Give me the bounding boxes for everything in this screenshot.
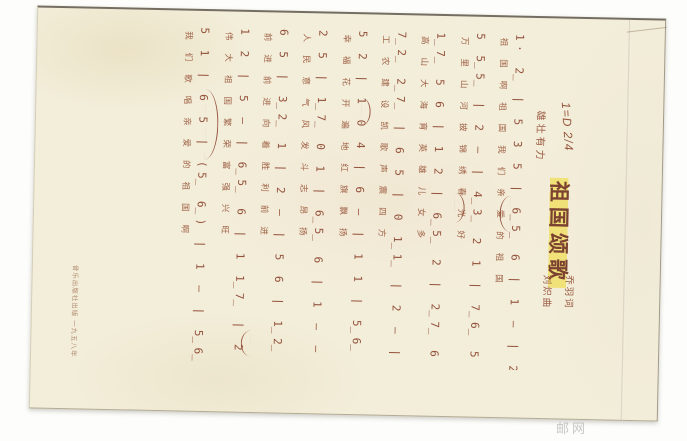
publisher-imprint: 音乐出版社出版 一九五八年 [69,265,81,358]
staff-line-5-notes: 5 2 | 1 0 4 | 6 — | 1 1 | 5̲6̲ 5 3 | 2 —… [349,31,369,367]
song-title: 祖国颂歌 [545,178,570,288]
paper-sheet: 祖国颂歌 1=D 2/4 雄壮有力 乔羽词 刘炽曲 1· 2̲ | 5 3 5 … [29,5,666,421]
title-row: 祖国颂歌 [540,33,578,434]
staff-line-9-notes: 5 1 | 6 5 | (5̲ 6̲) | 1 — | 5̲6̲ 5 | 1 —… [191,27,211,363]
staff-line-3-notes: 1̲7̲ 5 6 | 1 2 | 6̲5̲ 2 | 2̲7̲ 6 — | 5 6… [427,32,447,368]
credit-composer: 刘炽曲 [541,275,556,310]
credit-lyricist: 乔羽词 [563,275,578,310]
tempo-marking: 雄壮有力 [534,110,550,162]
staff-line-6-notes: 2 5 | 1̲7̲ 0 1 | 6̲5̲ 6 | 1 — — | 2 2 | … [309,30,329,366]
scanned-sheet-music-page: 祖国颂歌 1=D 2/4 雄壮有力 乔羽词 刘炽曲 1· 2̲ | 5 3 5 … [0,0,687,441]
staff-line-4-notes: 7̲2̲ 2̲7̲ | 6 5 | 0 1̲1̲ | 2 — | 5̲5̲ 3 … [388,31,408,367]
staff-line-2-notes: 5 5̲5̲ | 2 — | 4̲3̲ 2 1 | 7̲6̲ 5 | 5 6̲7… [467,33,487,369]
music-sheet-content: 祖国颂歌 1=D 2/4 雄壮有力 乔羽词 刘炽曲 1· 2̲ | 5 3 5 … [29,8,664,421]
staff-line-1-notes: 1· 2̲ | 5 3 5 | 6̲5̲ 6 | 1 — | 2̲2̲ 7̲6̲… [506,34,526,370]
staff-line-8-notes: 1 2 | 5 — | 6̲5̲ 6 | 1 1̲7̲ | 2 — | 5 6 … [231,28,251,364]
staff-line-7-notes: 6 5 | 3̲2̲ 1 | 2 — | 5 6 | 1̲2̲ 1̲7̲ | 6… [270,29,290,365]
scan-watermark: 邮网 [556,418,588,437]
